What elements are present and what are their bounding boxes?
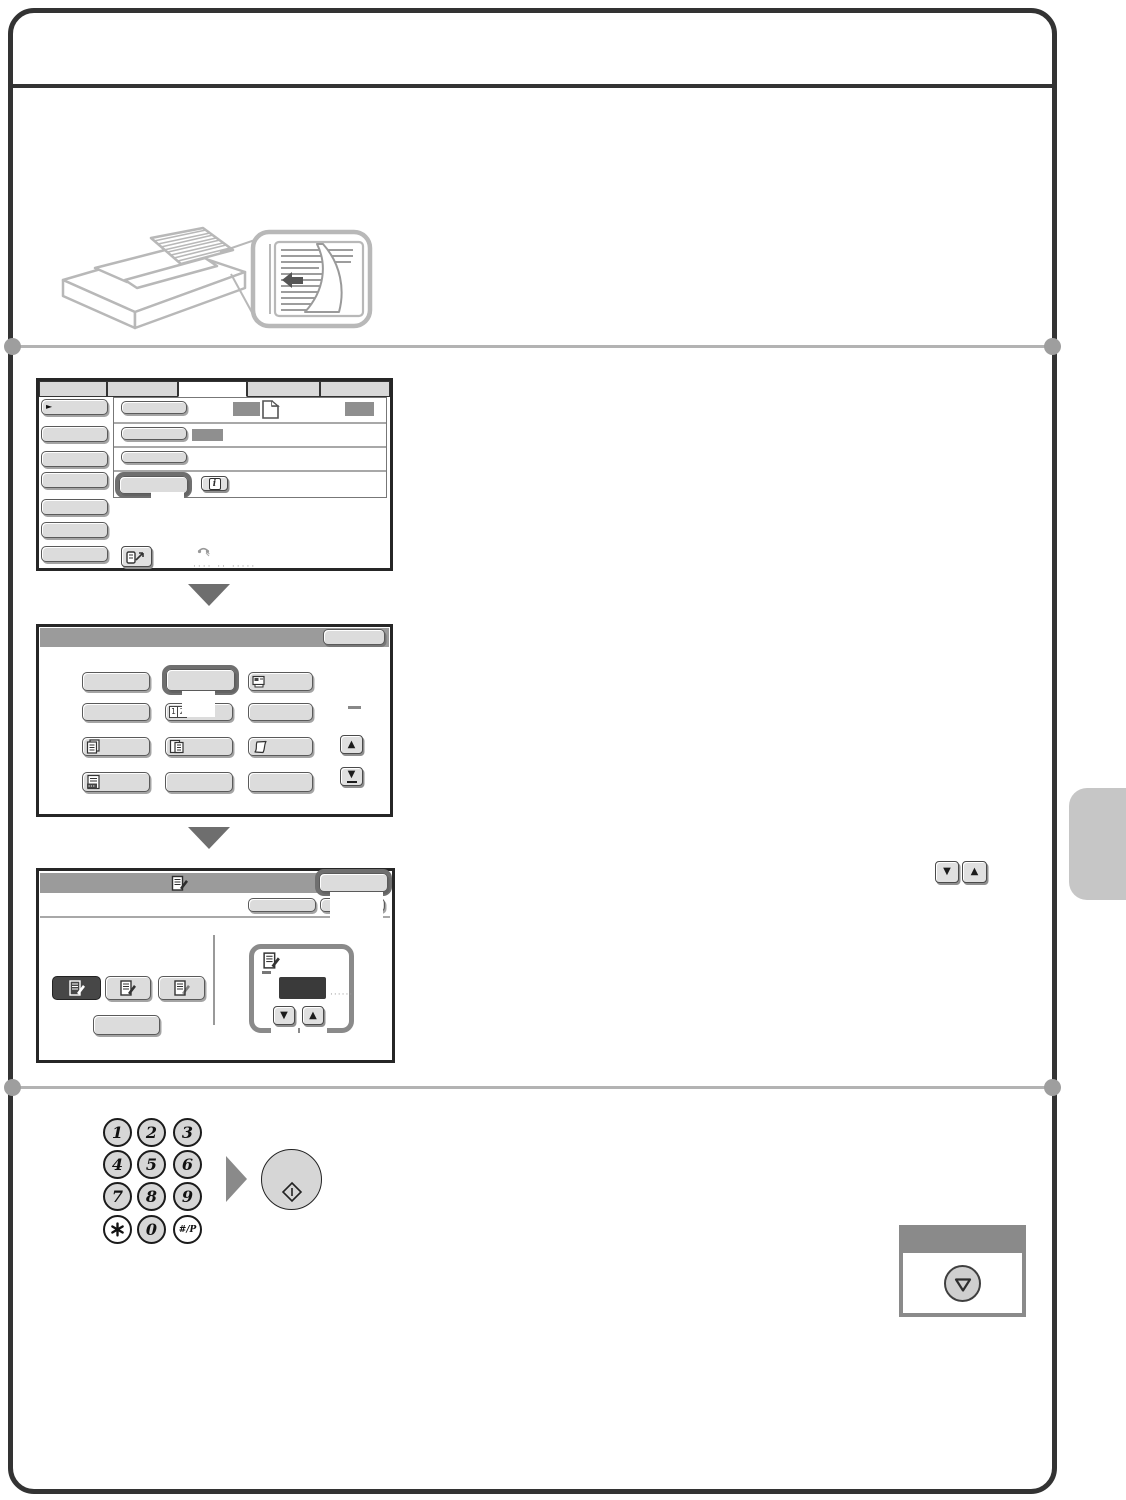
screen1-menu-button-3[interactable] [41, 451, 108, 467]
screen1-menu-button-4[interactable] [41, 472, 108, 488]
section-divider-2 [13, 1086, 1053, 1089]
keypad-key-9[interactable]: 9 [173, 1182, 202, 1211]
page-edge-tab [1069, 788, 1126, 900]
screen3-lower-key[interactable] [93, 1015, 160, 1035]
stop-triangle-icon [952, 1274, 974, 1294]
screen1-row1-value-box [233, 402, 260, 416]
screen1-menu-button-1[interactable]: ► [41, 399, 108, 415]
original-document-icon [261, 399, 280, 420]
divider-bullet [1044, 1079, 1061, 1096]
title-doc-pencil-icon [171, 875, 189, 892]
divider-bullet [4, 1079, 21, 1096]
manual-page: { "page": { "background": "#ffffff", "fr… [0, 0, 1126, 1500]
info-icon: i [209, 478, 221, 490]
down-arrow-icon: ▼ [280, 1011, 288, 1021]
screen3-increase-key[interactable]: ▲ [302, 1006, 324, 1025]
screen1-row3-key[interactable] [121, 451, 187, 463]
row-separator [114, 422, 386, 424]
keypad-key-star[interactable] [103, 1215, 132, 1244]
screen2-key-r1c2[interactable] [166, 669, 235, 691]
keypad-key-1[interactable]: 1 [103, 1118, 132, 1147]
screen2-key-r4c3[interactable] [248, 772, 313, 792]
screen2-key-r2c1[interactable] [82, 703, 150, 721]
step-arrow-down-1 [188, 584, 230, 606]
copier-illustration [55, 220, 385, 338]
keypad-key-6[interactable]: 6 [173, 1150, 202, 1179]
id-card-icon [252, 675, 266, 688]
stop-panel-header [903, 1229, 1022, 1253]
keypad-key-4[interactable]: 4 [103, 1150, 132, 1179]
divider-bullet [4, 338, 21, 355]
screen1-row2-key[interactable] [121, 427, 187, 440]
screen3-ok-button[interactable] [319, 873, 388, 892]
asterisk-key-icon [110, 1222, 125, 1237]
keypad-key-0[interactable]: 0 [137, 1215, 166, 1244]
frame-bottom-gap [300, 1028, 327, 1038]
counter-dots: ······ [330, 991, 353, 1000]
screen3-mode-key-3[interactable] [158, 976, 205, 1000]
screen3-decrease-key[interactable]: ▼ [273, 1006, 295, 1025]
phone-handset-icon [197, 547, 210, 560]
up-arrow-icon: ▲ [309, 1011, 317, 1021]
screen2-key-r1c1[interactable] [82, 672, 150, 691]
screen1-tab-bar [39, 381, 390, 397]
screen2-scroll-down-key[interactable]: ▼ [340, 767, 363, 786]
screen1-tab-1[interactable] [39, 381, 107, 397]
screen2-key-r3c1[interactable] [82, 737, 150, 756]
keypad-key-2[interactable]: 2 [137, 1118, 166, 1147]
stop-panel [899, 1225, 1026, 1317]
keypad-key-5[interactable]: 5 [137, 1150, 166, 1179]
screen2-key-r2c3[interactable] [248, 703, 313, 721]
dial-status-dots: ···· ·· ····· [193, 563, 256, 572]
menu-pointer-icon: ► [46, 403, 52, 411]
frame-header-divider [10, 84, 1055, 88]
screen3-counter-frame: ······ ▼ ▲ [249, 944, 354, 1033]
screen3-subrow-key-1[interactable] [248, 898, 316, 912]
keypad-key-pound[interactable]: #/P [173, 1215, 202, 1244]
screen1-base-screen: ► i [36, 378, 393, 571]
start-diamond-icon [280, 1180, 304, 1204]
screen3-vertical-divider [213, 935, 215, 1025]
screen1-tab-2[interactable] [107, 381, 178, 397]
screen2-key-r1c3[interactable] [248, 672, 313, 691]
counter-tiny-mark [262, 971, 271, 974]
stop-key[interactable] [944, 1265, 981, 1302]
down-bar [347, 781, 357, 783]
screen1-tab-selected[interactable] [178, 381, 247, 397]
step-arrow-down-2 [188, 827, 230, 849]
screen3-mode-key-selected[interactable] [52, 976, 101, 1000]
screen1-row1-value-box2 [345, 402, 374, 416]
address-book-arrow-icon [126, 549, 147, 564]
thin-paper-icon [253, 740, 269, 754]
screen3-mode-setting: ······ ▼ ▲ [36, 868, 395, 1063]
screen2-key-r4c2[interactable] [165, 772, 233, 792]
screen2-key-r4c1[interactable] [82, 772, 150, 792]
doc-pencil-icon-white [68, 979, 86, 997]
highlight-tail [330, 892, 383, 924]
file-icon [86, 774, 101, 791]
step-arrow-right [226, 1156, 247, 1202]
highlight-tail [151, 492, 184, 504]
screen1-settings-box: i [113, 397, 387, 498]
screen1-row2-value-box [192, 429, 223, 441]
screen1-menu-button-5[interactable] [41, 499, 108, 515]
row-separator [114, 446, 386, 448]
screen2-scroll-up-key[interactable]: ▲ [340, 735, 363, 754]
screen1-tab-4[interactable] [247, 381, 320, 397]
screen1-menu-button-6[interactable] [41, 522, 108, 538]
screen2-key-r3c2[interactable] [165, 737, 233, 756]
frame-bottom-gap [271, 1028, 298, 1038]
keypad-key-3[interactable]: 3 [173, 1118, 202, 1147]
divider-bullet [1044, 338, 1061, 355]
screen3-mode-key-2[interactable] [105, 976, 151, 1000]
inline-down-key: ▼ [935, 861, 959, 883]
screen1-menu-button-2[interactable] [41, 426, 108, 442]
up-arrow-icon: ▲ [971, 867, 979, 877]
copies-icon [86, 739, 101, 754]
counter-doc-pencil-icon [262, 951, 281, 970]
screen1-row1-key[interactable] [121, 401, 187, 414]
screen1-tab-5[interactable] [320, 381, 390, 397]
screen2-ok-button[interactable] [323, 629, 385, 645]
down-arrow-icon: ▼ [943, 867, 951, 877]
inline-up-key: ▲ [962, 861, 987, 883]
screen1-address-book-key[interactable] [121, 546, 152, 567]
section-divider-1 [13, 345, 1053, 348]
doc-pencil-icon [119, 979, 137, 997]
screen2-key-r3c3[interactable] [248, 737, 313, 756]
screen1-menu-button-7[interactable] [41, 546, 108, 562]
screen1-info-key[interactable]: i [201, 476, 228, 491]
doc-pencil-icon [173, 979, 191, 997]
start-key[interactable] [261, 1149, 322, 1210]
keypad-key-7[interactable]: 7 [103, 1182, 132, 1211]
originals-icon [169, 739, 185, 754]
counter-value-box [279, 977, 326, 999]
up-arrow-icon: ▲ [348, 740, 356, 750]
screen2-special-modes: 12 ▲ [36, 624, 393, 817]
dash-mark [348, 706, 361, 709]
highlight-tail [182, 691, 215, 717]
down-arrow-icon: ▼ [348, 770, 356, 780]
keypad-key-8[interactable]: 8 [137, 1182, 166, 1211]
